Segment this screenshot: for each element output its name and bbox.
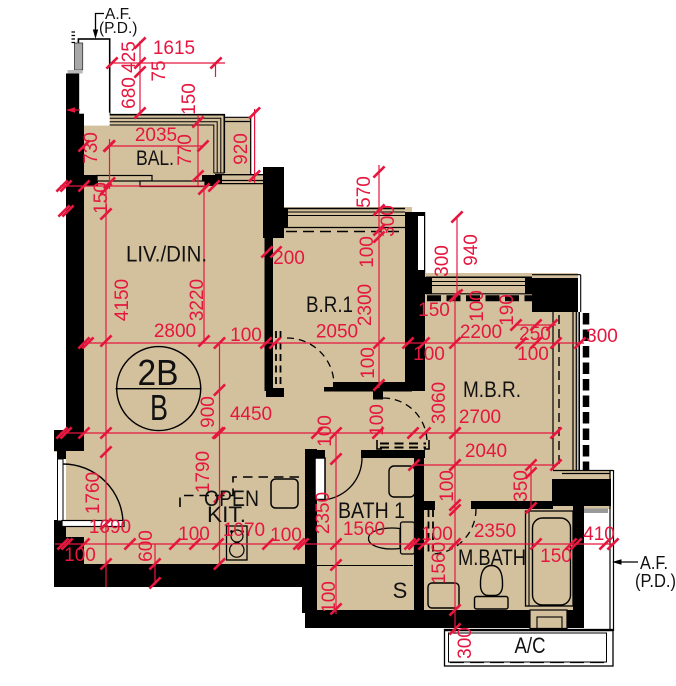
svg-text:350: 350 — [511, 470, 532, 502]
svg-text:100: 100 — [358, 347, 379, 379]
svg-text:(P.D.): (P.D.) — [99, 20, 137, 37]
svg-text:100: 100 — [315, 415, 336, 447]
svg-text:100: 100 — [178, 524, 210, 545]
svg-text:(P.D.): (P.D.) — [635, 571, 676, 591]
svg-text:300: 300 — [378, 205, 399, 237]
svg-text:S: S — [393, 578, 408, 603]
svg-text:730: 730 — [81, 132, 102, 164]
svg-text:770: 770 — [175, 134, 196, 166]
svg-text:100: 100 — [467, 290, 488, 322]
svg-text:150: 150 — [540, 546, 572, 567]
svg-text:150: 150 — [418, 300, 450, 321]
svg-text:M.B.R.: M.B.R. — [463, 377, 521, 402]
svg-text:920: 920 — [231, 133, 252, 165]
svg-text:2350: 2350 — [313, 492, 334, 534]
svg-text:2800: 2800 — [154, 321, 196, 342]
svg-text:900: 900 — [198, 396, 219, 428]
svg-text:150: 150 — [179, 83, 200, 115]
svg-text:BATH 1: BATH 1 — [338, 498, 405, 523]
svg-text:190: 190 — [497, 294, 518, 326]
svg-text:100: 100 — [357, 236, 378, 268]
svg-text:2035: 2035 — [135, 125, 177, 146]
svg-text:100: 100 — [230, 325, 262, 346]
svg-text:680: 680 — [119, 77, 140, 109]
svg-text:300: 300 — [455, 627, 476, 659]
svg-text:4150: 4150 — [112, 279, 133, 321]
svg-text:100: 100 — [413, 344, 445, 365]
svg-text:1560: 1560 — [429, 542, 450, 584]
svg-text:100: 100 — [64, 545, 96, 566]
svg-text:LIV./DIN.: LIV./DIN. — [126, 242, 207, 267]
svg-text:410: 410 — [583, 524, 615, 545]
svg-text:300: 300 — [432, 245, 453, 277]
svg-text:100: 100 — [270, 525, 302, 546]
svg-text:600: 600 — [136, 530, 157, 562]
svg-text:100: 100 — [421, 524, 453, 545]
svg-text:75: 75 — [149, 60, 170, 81]
svg-text:A/C: A/C — [515, 633, 546, 658]
svg-text:3060: 3060 — [429, 382, 450, 424]
svg-text:1615: 1615 — [153, 38, 195, 59]
svg-text:940: 940 — [461, 234, 482, 266]
svg-text:KIT.: KIT. — [207, 502, 246, 527]
svg-text:1760: 1760 — [83, 472, 104, 514]
svg-text:2300: 2300 — [355, 284, 376, 326]
svg-text:B: B — [150, 387, 168, 428]
svg-text:2050: 2050 — [316, 322, 358, 343]
svg-text:B.R.1: B.R.1 — [306, 292, 353, 317]
svg-text:100: 100 — [517, 344, 549, 365]
svg-text:3220: 3220 — [187, 279, 208, 321]
svg-text:2350: 2350 — [474, 521, 516, 542]
svg-text:300: 300 — [586, 326, 618, 347]
svg-text:4450: 4450 — [230, 404, 272, 425]
svg-text:570: 570 — [354, 176, 375, 208]
svg-text:BAL.: BAL. — [136, 147, 174, 170]
svg-text:100: 100 — [367, 404, 388, 436]
svg-text:A.F.: A.F. — [640, 553, 668, 573]
svg-text:1690: 1690 — [89, 517, 131, 538]
svg-text:425: 425 — [119, 41, 140, 73]
svg-text:250: 250 — [519, 324, 551, 345]
svg-text:2700: 2700 — [459, 407, 501, 428]
svg-text:2040: 2040 — [465, 441, 507, 462]
svg-text:M.BATH: M.BATH — [458, 545, 526, 570]
svg-text:100: 100 — [319, 581, 340, 613]
svg-text:2200: 2200 — [460, 322, 502, 343]
